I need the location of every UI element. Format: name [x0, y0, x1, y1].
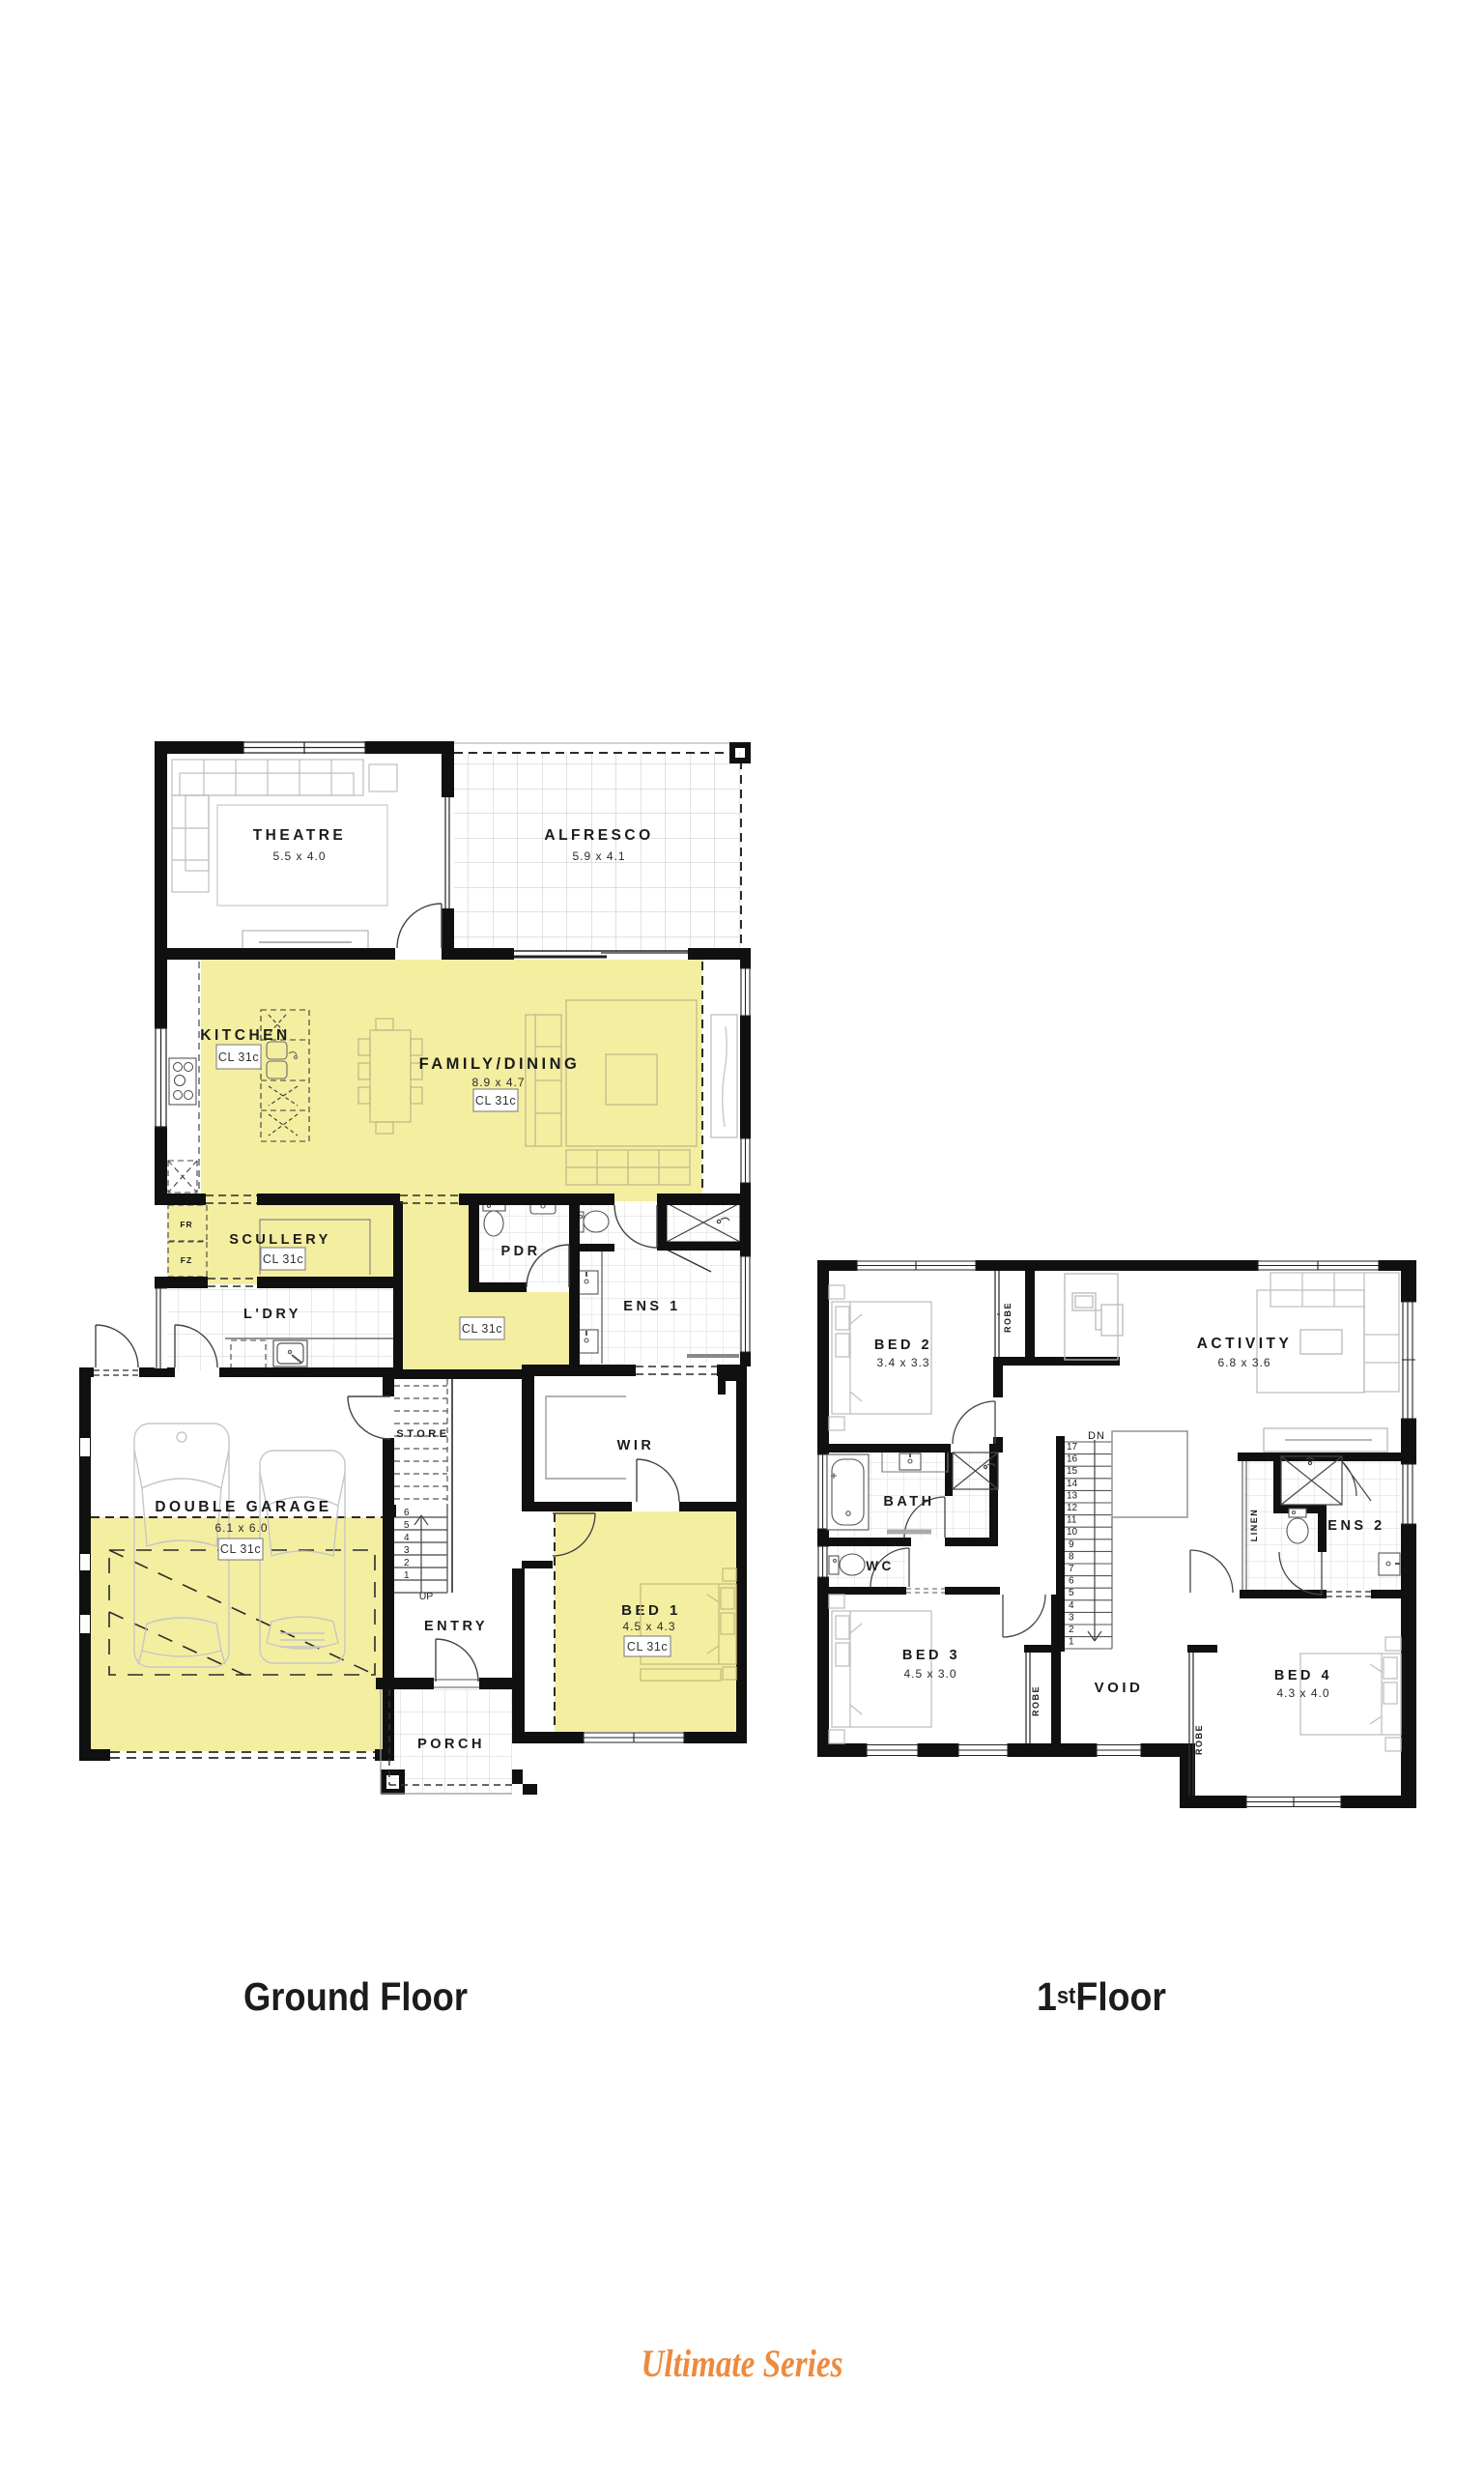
svg-text:WC: WC	[866, 1559, 895, 1573]
svg-text:WIR: WIR	[617, 1438, 655, 1453]
svg-text:CL 31c: CL 31c	[475, 1094, 516, 1108]
svg-text:3: 3	[1069, 1612, 1074, 1623]
svg-text:5: 5	[1069, 1588, 1074, 1598]
svg-text:Ultimate Series: Ultimate Series	[642, 2342, 843, 2385]
svg-text:15: 15	[1067, 1466, 1078, 1477]
svg-text:3: 3	[404, 1545, 410, 1556]
svg-text:6: 6	[404, 1508, 410, 1518]
svg-text:6: 6	[1069, 1576, 1074, 1587]
svg-text:FAMILY/DINING: FAMILY/DINING	[419, 1055, 581, 1073]
svg-text:16: 16	[1067, 1454, 1078, 1465]
svg-text:LINEN: LINEN	[1249, 1509, 1259, 1542]
svg-text:ROBE: ROBE	[1031, 1685, 1041, 1716]
svg-text:BED 2: BED 2	[874, 1338, 932, 1353]
svg-text:13: 13	[1067, 1490, 1078, 1501]
svg-text:1stFloor: 1stFloor	[1037, 1974, 1166, 2019]
svg-text:FZ: FZ	[181, 1255, 192, 1265]
svg-text:KITCHEN: KITCHEN	[200, 1027, 290, 1044]
svg-text:CL 31c: CL 31c	[263, 1252, 303, 1266]
svg-text:L'DRY: L'DRY	[243, 1307, 301, 1322]
svg-text:ACTIVITY: ACTIVITY	[1197, 1336, 1293, 1352]
svg-text:5.9 x 4.1: 5.9 x 4.1	[572, 849, 625, 863]
svg-text:5: 5	[404, 1520, 410, 1531]
svg-text:CL 31c: CL 31c	[462, 1322, 502, 1336]
svg-text:7: 7	[1069, 1564, 1074, 1574]
svg-text:ROBE: ROBE	[1194, 1724, 1204, 1755]
svg-text:PORCH: PORCH	[417, 1737, 485, 1752]
svg-text:BED 3: BED 3	[902, 1648, 960, 1663]
svg-text:2: 2	[1069, 1625, 1074, 1635]
svg-text:BATH: BATH	[883, 1494, 934, 1510]
svg-text:THEATRE: THEATRE	[253, 827, 347, 844]
svg-text:3.4 x 3.3: 3.4 x 3.3	[876, 1356, 929, 1369]
svg-text:9: 9	[1069, 1539, 1074, 1550]
svg-text:BED 4: BED 4	[1274, 1668, 1332, 1683]
svg-text:ALFRESCO: ALFRESCO	[544, 827, 653, 844]
svg-text:VOID: VOID	[1095, 1680, 1144, 1696]
svg-text:ENTRY: ENTRY	[424, 1619, 488, 1634]
svg-text:BED 1: BED 1	[621, 1602, 681, 1619]
svg-text:10: 10	[1067, 1527, 1078, 1538]
svg-text:4.5 x 3.0: 4.5 x 3.0	[903, 1667, 956, 1681]
svg-text:ENS 1: ENS 1	[623, 1299, 680, 1314]
svg-text:CL 31c: CL 31c	[220, 1542, 261, 1556]
svg-text:14: 14	[1067, 1479, 1078, 1489]
svg-text:ENS 2: ENS 2	[1327, 1518, 1384, 1534]
svg-text:Ground Floor: Ground Floor	[243, 1974, 468, 2019]
svg-text:17: 17	[1067, 1442, 1078, 1453]
svg-text:1: 1	[404, 1570, 410, 1581]
svg-text:CL 31c: CL 31c	[627, 1640, 668, 1654]
svg-text:6.8 x 3.6: 6.8 x 3.6	[1217, 1356, 1270, 1369]
svg-text:DN: DN	[1088, 1430, 1105, 1442]
svg-text:4.5 x 4.3: 4.5 x 4.3	[622, 1620, 675, 1633]
svg-text:4.3 x 4.0: 4.3 x 4.0	[1276, 1686, 1329, 1700]
svg-text:8: 8	[1069, 1551, 1074, 1562]
svg-text:4: 4	[1069, 1600, 1074, 1611]
svg-text:PDR: PDR	[500, 1244, 540, 1259]
svg-text:SCULLERY: SCULLERY	[229, 1232, 331, 1248]
svg-text:4: 4	[404, 1533, 410, 1543]
svg-text:UP: UP	[419, 1591, 434, 1602]
svg-text:2: 2	[404, 1558, 410, 1568]
svg-text:FR: FR	[180, 1220, 192, 1229]
svg-text:DOUBLE GARAGE: DOUBLE GARAGE	[155, 1499, 331, 1515]
svg-text:1: 1	[1069, 1637, 1074, 1648]
svg-text:6.1 x 6.0: 6.1 x 6.0	[214, 1521, 268, 1535]
svg-text:11: 11	[1067, 1515, 1077, 1526]
svg-text:CL 31c: CL 31c	[218, 1050, 259, 1064]
svg-text:ROBE: ROBE	[1003, 1302, 1013, 1333]
svg-text:12: 12	[1067, 1503, 1078, 1513]
svg-text:5.5 x 4.0: 5.5 x 4.0	[272, 849, 326, 863]
svg-text:STORE: STORE	[396, 1428, 449, 1440]
svg-text:8.9 x 4.7: 8.9 x 4.7	[471, 1076, 525, 1089]
